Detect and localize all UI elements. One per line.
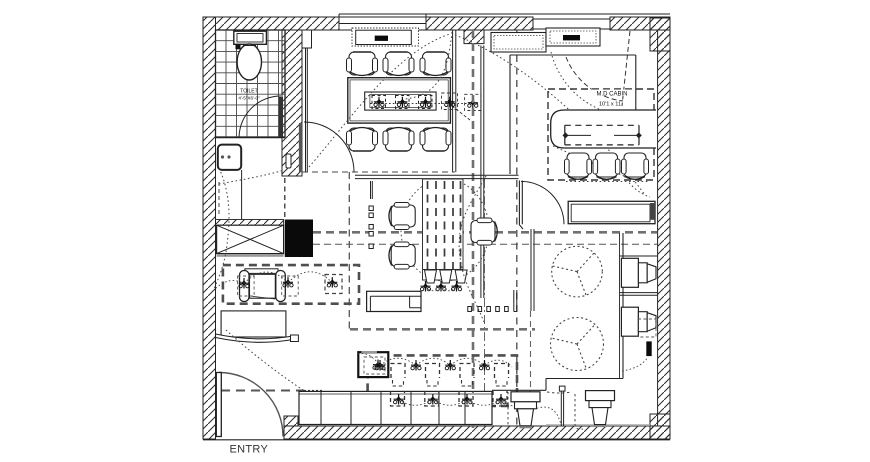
svg-text:M.D CABIN: M.D CABIN xyxy=(596,92,627,98)
svg-text:ENTRY: ENTRY xyxy=(230,444,269,456)
svg-text:TOILET: TOILET xyxy=(240,89,257,95)
svg-text:10'1 x 11: 10'1 x 11 xyxy=(599,102,621,108)
svg-text:4'-5"X6'-0": 4'-5"X6'-0" xyxy=(238,96,260,101)
